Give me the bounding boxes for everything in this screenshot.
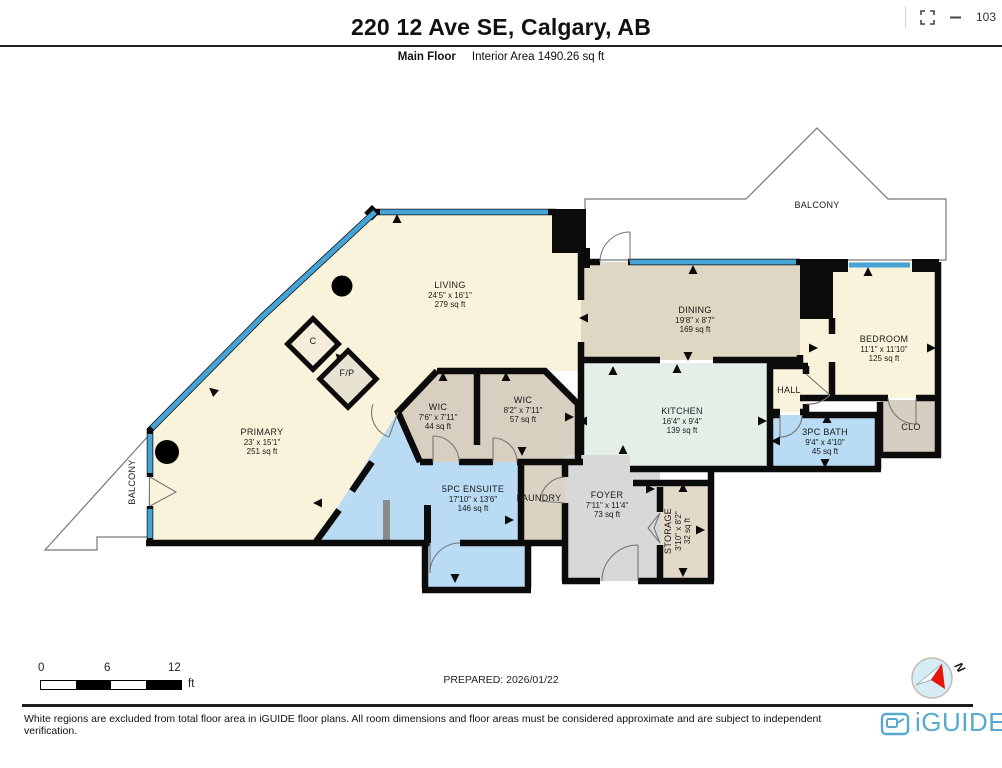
room-label-kitchen: KITCHEN16'4" x 9'4"139 sq ft	[661, 406, 703, 435]
prepared-date: PREPARED: 2026/01/22	[0, 674, 1002, 686]
iguide-logo-text: iGUIDE	[915, 707, 1002, 738]
iguide-logo: iGUIDE	[880, 707, 1002, 738]
disclaimer-text: White regions are excluded from total fl…	[24, 713, 854, 737]
scale-tick-12: 12	[168, 662, 181, 674]
scale-tick-0: 0	[38, 662, 44, 674]
compass: N	[902, 652, 966, 704]
room-label-fireplace: F/P	[340, 368, 355, 378]
shower-glass-divider	[383, 500, 390, 542]
iguide-logo-icon	[880, 710, 910, 736]
compass-n-label: N	[952, 660, 966, 675]
floorplan-page: 220 12 Ave SE, Calgary, AB Main FloorInt…	[0, 0, 1002, 768]
room-label-laundry: LAUNDRY	[517, 493, 562, 503]
room-label-closet-c: C	[310, 336, 317, 346]
room-label-clo: CLO	[901, 422, 920, 432]
room-label-dining: DINING19'8" x 8'7"169 sq ft	[675, 305, 715, 334]
floorplan-drawing: LIVING24'5" x 16'1"279 sq ftDINING19'8" …	[0, 0, 1002, 768]
column-primary	[155, 440, 179, 464]
scale-tick-6: 6	[104, 662, 110, 674]
footer-divider	[22, 704, 973, 707]
room-label-balcony-top: BALCONY	[794, 200, 839, 210]
room-label-primary: PRIMARY23' x 15'1"251 sq ft	[241, 427, 284, 456]
column-living	[332, 276, 353, 297]
room-label-hall: HALL	[777, 385, 801, 395]
room-label-balcony-left: BALCONY	[127, 459, 137, 504]
